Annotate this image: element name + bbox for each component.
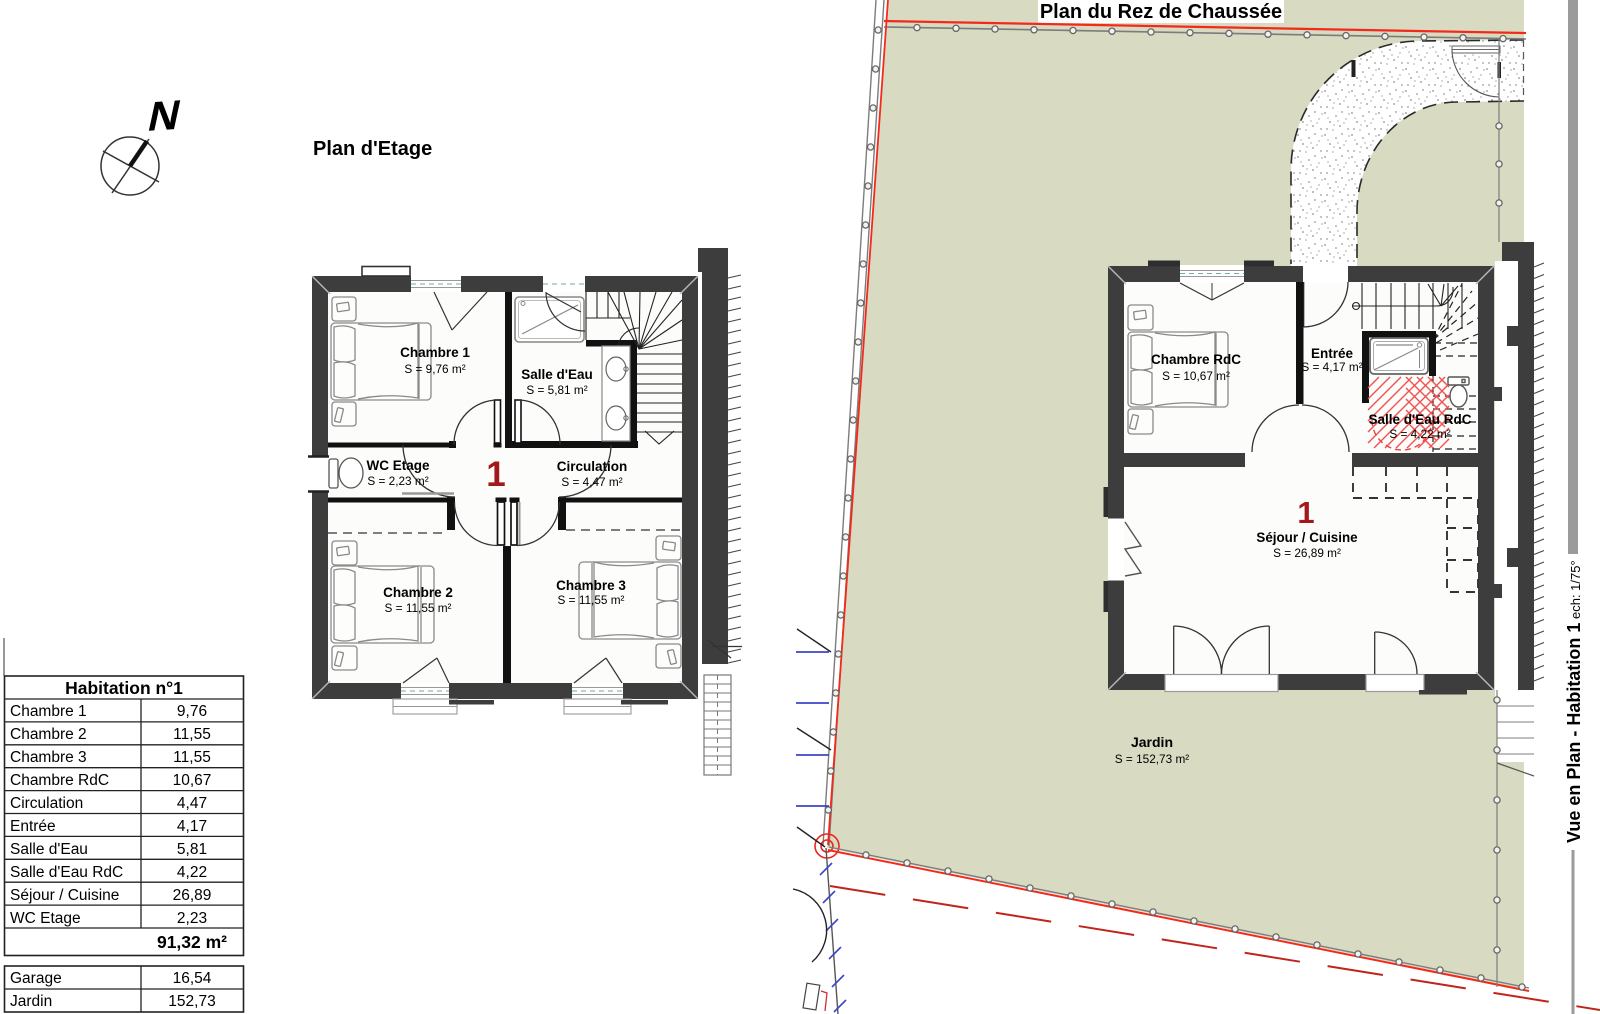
svg-text:152,73: 152,73 bbox=[168, 993, 215, 1010]
svg-text:5,81: 5,81 bbox=[177, 841, 207, 858]
svg-text:WC Etage: WC Etage bbox=[366, 458, 429, 473]
svg-text:Jardin: Jardin bbox=[1131, 734, 1173, 750]
svg-text:Chambre 3: Chambre 3 bbox=[10, 749, 87, 766]
svg-text:Circulation: Circulation bbox=[10, 795, 83, 812]
svg-text:S = 4,47 m²: S = 4,47 m² bbox=[561, 475, 622, 489]
svg-text:4,47: 4,47 bbox=[177, 795, 207, 812]
svg-text:Séjour / Cuisine: Séjour / Cuisine bbox=[1256, 530, 1357, 545]
svg-text:Chambre 2: Chambre 2 bbox=[383, 585, 453, 600]
svg-text:4,22: 4,22 bbox=[177, 864, 207, 881]
svg-text:Habitation n°1: Habitation n°1 bbox=[65, 678, 183, 698]
svg-text:Circulation: Circulation bbox=[557, 459, 628, 474]
svg-text:S = 11,55 m²: S = 11,55 m² bbox=[385, 601, 452, 615]
svg-text:Séjour / Cuisine: Séjour / Cuisine bbox=[10, 887, 119, 904]
svg-text:4,17: 4,17 bbox=[177, 818, 207, 835]
svg-text:Jardin: Jardin bbox=[10, 993, 52, 1010]
svg-text:91,32 m²: 91,32 m² bbox=[157, 932, 227, 952]
svg-text:S = 10,67 m²: S = 10,67 m² bbox=[1162, 369, 1230, 383]
svg-text:Chambre 2: Chambre 2 bbox=[10, 726, 87, 743]
svg-text:S = 2,23 m²: S = 2,23 m² bbox=[367, 474, 428, 488]
svg-text:Plan d'Etage: Plan d'Etage bbox=[313, 138, 432, 160]
svg-text:Entrée: Entrée bbox=[10, 818, 56, 835]
svg-text:S = 11,55 m²: S = 11,55 m² bbox=[558, 593, 625, 607]
svg-text:9,76: 9,76 bbox=[177, 703, 207, 720]
svg-text:Entrée: Entrée bbox=[1311, 346, 1354, 361]
svg-text:Chambre 1: Chambre 1 bbox=[400, 345, 470, 360]
svg-text:S = 5,81 m²: S = 5,81 m² bbox=[526, 383, 587, 397]
svg-text:S = 4,17 m²: S = 4,17 m² bbox=[1301, 360, 1362, 374]
svg-text:26,89: 26,89 bbox=[173, 887, 212, 904]
svg-text:Salle d'Eau: Salle d'Eau bbox=[10, 841, 88, 858]
svg-text:11,55: 11,55 bbox=[173, 749, 211, 766]
svg-text:Garage: Garage bbox=[10, 970, 62, 987]
svg-text:Chambre 3: Chambre 3 bbox=[556, 578, 626, 593]
svg-text:16,54: 16,54 bbox=[173, 970, 212, 987]
svg-text:S = 4,22 m²: S = 4,22 m² bbox=[1389, 427, 1450, 441]
svg-text:Plan du Rez de Chaussée: Plan du Rez de Chaussée bbox=[1040, 1, 1282, 23]
svg-text:10,67: 10,67 bbox=[173, 772, 212, 789]
svg-text:S = 26,89 m²: S = 26,89 m² bbox=[1273, 546, 1341, 560]
svg-text:Salle d'Eau RdC: Salle d'Eau RdC bbox=[1369, 412, 1472, 427]
svg-text:Salle d'Eau RdC: Salle d'Eau RdC bbox=[10, 864, 123, 881]
svg-text:S = 9,76 m²: S = 9,76 m² bbox=[404, 362, 465, 376]
svg-text:2,23: 2,23 bbox=[177, 910, 207, 927]
svg-text:WC Etage: WC Etage bbox=[10, 910, 81, 927]
svg-text:Salle d'Eau: Salle d'Eau bbox=[521, 367, 593, 382]
svg-text:1: 1 bbox=[486, 455, 505, 494]
svg-text:1: 1 bbox=[1297, 495, 1314, 530]
svg-text:Chambre RdC: Chambre RdC bbox=[10, 772, 109, 789]
svg-text:11,55: 11,55 bbox=[173, 726, 211, 743]
svg-text:Chambre RdC: Chambre RdC bbox=[1151, 352, 1241, 367]
svg-text:S = 152,73 m²: S = 152,73 m² bbox=[1115, 752, 1189, 766]
svg-text:Chambre 1: Chambre 1 bbox=[10, 703, 87, 720]
